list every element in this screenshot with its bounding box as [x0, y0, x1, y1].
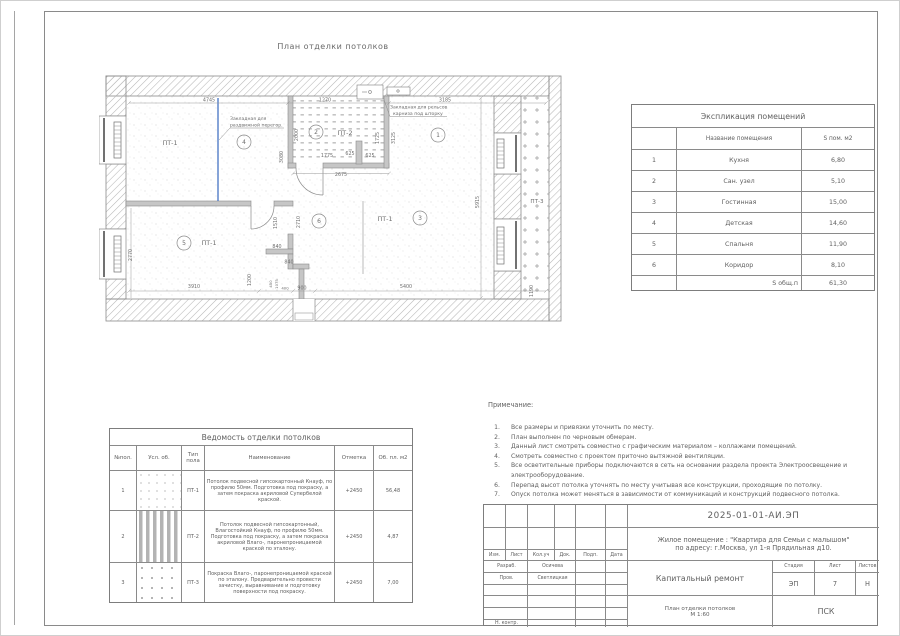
- note-num: 3.: [488, 442, 500, 452]
- table-total-row: S общ.п 61,30: [632, 275, 874, 290]
- col-header: №пол.: [110, 445, 137, 470]
- note-item: 1.Все размеры и привязки уточнить по мес…: [488, 423, 880, 433]
- tb-role-prov: Пров.: [484, 572, 527, 584]
- tb-col-izm: Изм.: [484, 549, 505, 560]
- tb-cell: [484, 595, 527, 607]
- tb-doc-number: 2025-01-01-АИ.ЭП: [627, 505, 879, 527]
- window-left-2: [99, 229, 126, 279]
- dim: 3080: [279, 151, 285, 163]
- tb-cell: [484, 584, 527, 595]
- finish-label-pt1: ПТ-1: [377, 215, 392, 223]
- tb-cell: [505, 505, 527, 527]
- cell-type: ПТ-3: [182, 562, 205, 602]
- finish-schedule-table: Ведомость отделки потолков №пол. Усл. об…: [109, 428, 413, 603]
- tb-cell: [505, 527, 527, 549]
- tb-name-prov: Светлицкая: [527, 572, 575, 584]
- cell-num: 2: [632, 170, 677, 191]
- finish-label-pt2: ПТ-2: [337, 129, 352, 137]
- tb-cell: [554, 505, 575, 527]
- note-item: 4.Смотреть совместно с проектом приточно…: [488, 452, 880, 462]
- tb-cell: [605, 560, 627, 572]
- cell-num: 4: [632, 212, 677, 233]
- tb-col-data: Дата: [605, 549, 627, 560]
- tb-cell: [527, 584, 575, 595]
- cell-num: 1: [632, 149, 677, 170]
- tb-cell: [575, 572, 605, 584]
- table-row: 1 ПТ-1 Потолок подвесной гипсокартонный …: [110, 470, 412, 510]
- pattern-swatch-dots: [137, 562, 182, 602]
- tb-name-razrab: Осичева: [527, 560, 575, 572]
- cell-description: Потолок подвесной гипсокартонный Кнауф, …: [205, 470, 335, 510]
- svg-text:2: 2: [314, 129, 318, 136]
- cell-num: 2: [110, 510, 137, 562]
- explication-table: Экспликация помещений Название помещения…: [631, 104, 875, 291]
- tb-cell: [575, 607, 605, 619]
- dim: 450: [268, 280, 273, 288]
- dim: 2770: [128, 249, 134, 261]
- tb-cell: [484, 607, 527, 619]
- tb-cell: [605, 607, 627, 619]
- dim: 2000: [294, 129, 300, 141]
- note-num: 4.: [488, 452, 500, 462]
- dim: 840: [272, 244, 281, 250]
- tb-cell: [605, 584, 627, 595]
- col-header-name: Название помещения: [677, 127, 802, 149]
- cell-num: 1: [110, 470, 137, 510]
- col-header: Тип пола: [182, 445, 205, 470]
- dim: 2675: [335, 172, 347, 178]
- pattern-swatch-dashes: [137, 510, 182, 562]
- tb-cell: [575, 584, 605, 595]
- dim: 1510: [273, 217, 279, 229]
- tb-cell: [575, 527, 605, 549]
- dim: 625: [345, 151, 354, 157]
- cell-area: 6,80: [802, 149, 874, 170]
- note-text: Данный лист смотреть совместно с графиче…: [511, 442, 797, 452]
- dim: 2710: [296, 216, 302, 228]
- room-fills: [126, 96, 549, 299]
- cell-mark: +2450: [335, 510, 374, 562]
- tb-cell: [575, 505, 605, 527]
- tb-cell: [575, 619, 605, 627]
- pattern-swatch-speckle: [137, 470, 182, 510]
- col-header: Отметка: [335, 445, 374, 470]
- tb-cell: [575, 560, 605, 572]
- cell-mark: +2450: [335, 470, 374, 510]
- tb-sheets-label: Листов: [855, 560, 879, 572]
- tb-cell: [527, 619, 575, 627]
- window-right-2: [494, 219, 521, 271]
- cell-description: Покраска Влаго-, паронепроницаемой краск…: [205, 562, 335, 602]
- dim: 1190: [529, 285, 535, 297]
- cell-name: Детская: [677, 212, 802, 233]
- cell-area: 7,00: [374, 562, 412, 602]
- tb-col-dok: Док.: [554, 549, 575, 560]
- tb-role-nkontr: Н. контр.: [484, 619, 527, 627]
- tb-project-line2: по адресу: г.Москва, ул 1-я Прядильная д…: [675, 544, 832, 552]
- tb-col-list: Лист: [505, 549, 527, 560]
- table-row: 1 Кухня 6,80: [632, 149, 874, 170]
- dim: 3910: [188, 284, 200, 290]
- tb-sheet-label: Лист: [814, 560, 855, 572]
- dim: 4745: [203, 98, 215, 104]
- tb-project-line1: Жилое помещение : "Квартира для Семьи с …: [658, 536, 850, 544]
- col-header-area: S пом. м2: [802, 127, 874, 149]
- drawing-title: План отделки потолков: [233, 42, 433, 51]
- cell-mark: +2450: [335, 562, 374, 602]
- cell-num: 6: [632, 254, 677, 275]
- dim: 1200: [247, 274, 253, 286]
- tb-stage-value: ЭП: [772, 572, 814, 595]
- dim: 625: [365, 153, 374, 159]
- note-text: План выполнен по черновым обмерам.: [511, 433, 636, 443]
- note-num: 7.: [488, 490, 500, 500]
- tb-cell: [527, 595, 575, 607]
- table-row: 2 Сан. узел 5,10: [632, 170, 874, 191]
- schedule-title: Ведомость отделки потолков: [110, 429, 412, 445]
- tb-cell: [554, 527, 575, 549]
- tb-work-type: Капитальный ремонт: [627, 560, 772, 595]
- dim: 3125: [391, 132, 397, 144]
- note-item: 3.Данный лист смотреть совместно с графи…: [488, 442, 880, 452]
- dim: 5400: [400, 284, 412, 290]
- tb-sheet-name: План отделки потолков М 1:60: [627, 595, 772, 627]
- dim: 840: [284, 260, 293, 266]
- tb-sheet-value: 7: [814, 572, 855, 595]
- window-right-1: [494, 133, 521, 174]
- floor-plan: 4745 1270 3185 2000 1775 625 625 1725 31…: [99, 56, 569, 336]
- cell-name: Спальня: [677, 233, 802, 254]
- entrance-opening: [293, 299, 315, 321]
- cell-num: 5: [632, 233, 677, 254]
- tb-cell: [527, 527, 554, 549]
- note-item: 2.План выполнен по черновым обмерам.: [488, 433, 880, 443]
- dim: 1270: [319, 98, 331, 104]
- cell-name: Гостинная: [677, 191, 802, 212]
- svg-text:1: 1: [436, 132, 440, 139]
- tb-cell: [605, 572, 627, 584]
- cell-num: 3: [632, 191, 677, 212]
- note-item: 5.Все осветительные приборы подключаются…: [488, 461, 880, 480]
- dim: 900: [297, 286, 306, 292]
- dim: 5915: [475, 196, 481, 208]
- finish-label-pt3: ПТ-3: [530, 199, 544, 205]
- tb-org: ПСК: [772, 595, 879, 627]
- svg-text:6: 6: [317, 218, 321, 225]
- svg-text:раздвижной перегор.: раздвижной перегор.: [230, 122, 283, 129]
- tb-cell: [605, 619, 627, 627]
- table-row: 3 Гостинная 15,00: [632, 191, 874, 212]
- cell-name: Сан. узел: [677, 170, 802, 191]
- note-text: Опуск потолка может меняться в зависимос…: [511, 490, 840, 500]
- svg-text:5: 5: [182, 240, 186, 247]
- tb-cell: [605, 595, 627, 607]
- note-item: 6.Перепад высот потолка уточнять по мест…: [488, 481, 880, 491]
- notes-title: Примечание:: [488, 401, 880, 409]
- tb-stage-label: Стадия: [772, 560, 814, 572]
- svg-text:4: 4: [242, 139, 246, 146]
- cell-num: 3: [110, 562, 137, 602]
- dim: 1075: [274, 279, 279, 289]
- tb-sheet-name-line2: М 1:60: [690, 612, 709, 618]
- cell-area: 4,87: [374, 510, 412, 562]
- window-left-1: [99, 116, 126, 164]
- balcony-area: [521, 96, 549, 299]
- notes-section: Примечание: 1.Все размеры и привязки уто…: [488, 401, 880, 500]
- tb-cell: [527, 607, 575, 619]
- dim: 1725: [375, 132, 381, 144]
- tb-cell: [527, 505, 554, 527]
- note-item: 7.Опуск потолка может меняться в зависим…: [488, 490, 880, 500]
- table-row: 3 ПТ-3 Покраска Влаго-, паронепроницаемо…: [110, 562, 412, 602]
- explication-title: Экспликация помещений: [632, 105, 874, 127]
- cell-area: 8,10: [802, 254, 874, 275]
- note-text: Перепад высот потолка уточнять по месту …: [511, 481, 822, 491]
- svg-text:Закладная для рельсов: Закладная для рельсов: [390, 105, 448, 111]
- total-value: 61,30: [802, 275, 874, 290]
- note-num: 2.: [488, 433, 500, 443]
- binding-margin-line: [14, 11, 15, 625]
- note-num: 1.: [488, 423, 500, 433]
- tb-project: Жилое помещение : "Квартира для Семьи с …: [627, 527, 879, 560]
- cell-description: Потолок подвесной гипсокартонный, Влагос…: [205, 510, 335, 562]
- title-block: Изм. Лист Кол.уч Док. Подп. Дата Разраб.…: [483, 504, 878, 626]
- tb-cell: [484, 505, 505, 527]
- total-label: S общ.п: [677, 275, 802, 290]
- svg-text:Закладная для: Закладная для: [230, 116, 267, 122]
- col-header: Наименование: [205, 445, 335, 470]
- finish-label-pt1: ПТ-1: [201, 239, 216, 247]
- table-row: 4 Детская 14,60: [632, 212, 874, 233]
- cell-name: Кухня: [677, 149, 802, 170]
- svg-text:3: 3: [418, 215, 422, 222]
- tb-sheets-value: Н: [855, 572, 879, 595]
- cell-empty: [632, 275, 677, 290]
- tb-col-koluch: Кол.уч: [527, 549, 554, 560]
- table-row: 2 ПТ-2 Потолок подвесной гипсокартонный,…: [110, 510, 412, 562]
- cell-name: Коридор: [677, 254, 802, 275]
- drawing-sheet: План отделки потолков: [0, 0, 900, 636]
- tb-col-podp: Подп.: [575, 549, 605, 560]
- note-num: 6.: [488, 481, 500, 491]
- tb-cell: [484, 527, 505, 549]
- cell-area: 15,00: [802, 191, 874, 212]
- tb-role-razrab: Разраб.: [484, 560, 527, 572]
- note-text: Все осветительные приборы подключаются в…: [511, 461, 880, 480]
- tb-cell: [605, 505, 627, 527]
- cell-area: 11,90: [802, 233, 874, 254]
- dim: 3185: [439, 98, 451, 104]
- tb-cell: [575, 595, 605, 607]
- col-header: Усл. об.: [137, 445, 182, 470]
- table-row: 5 Спальня 11,90: [632, 233, 874, 254]
- cell-type: ПТ-1: [182, 470, 205, 510]
- dim: 400: [281, 286, 289, 291]
- col-header-num: [632, 127, 677, 149]
- tb-cell: [605, 527, 627, 549]
- table-row: 6 Коридор 8,10: [632, 254, 874, 275]
- dim: 1775: [321, 153, 333, 159]
- note-text: Все размеры и привязки уточнить по месту…: [511, 423, 654, 433]
- cell-area: 56,48: [374, 470, 412, 510]
- note-text: Смотреть совместно с проектом приточно в…: [511, 452, 725, 462]
- note-num: 5.: [488, 461, 500, 480]
- col-header: Об. пл. м2: [374, 445, 412, 470]
- cell-area: 5,10: [802, 170, 874, 191]
- cell-area: 14,60: [802, 212, 874, 233]
- cell-type: ПТ-2: [182, 510, 205, 562]
- finish-label-pt1: ПТ-1: [162, 139, 177, 147]
